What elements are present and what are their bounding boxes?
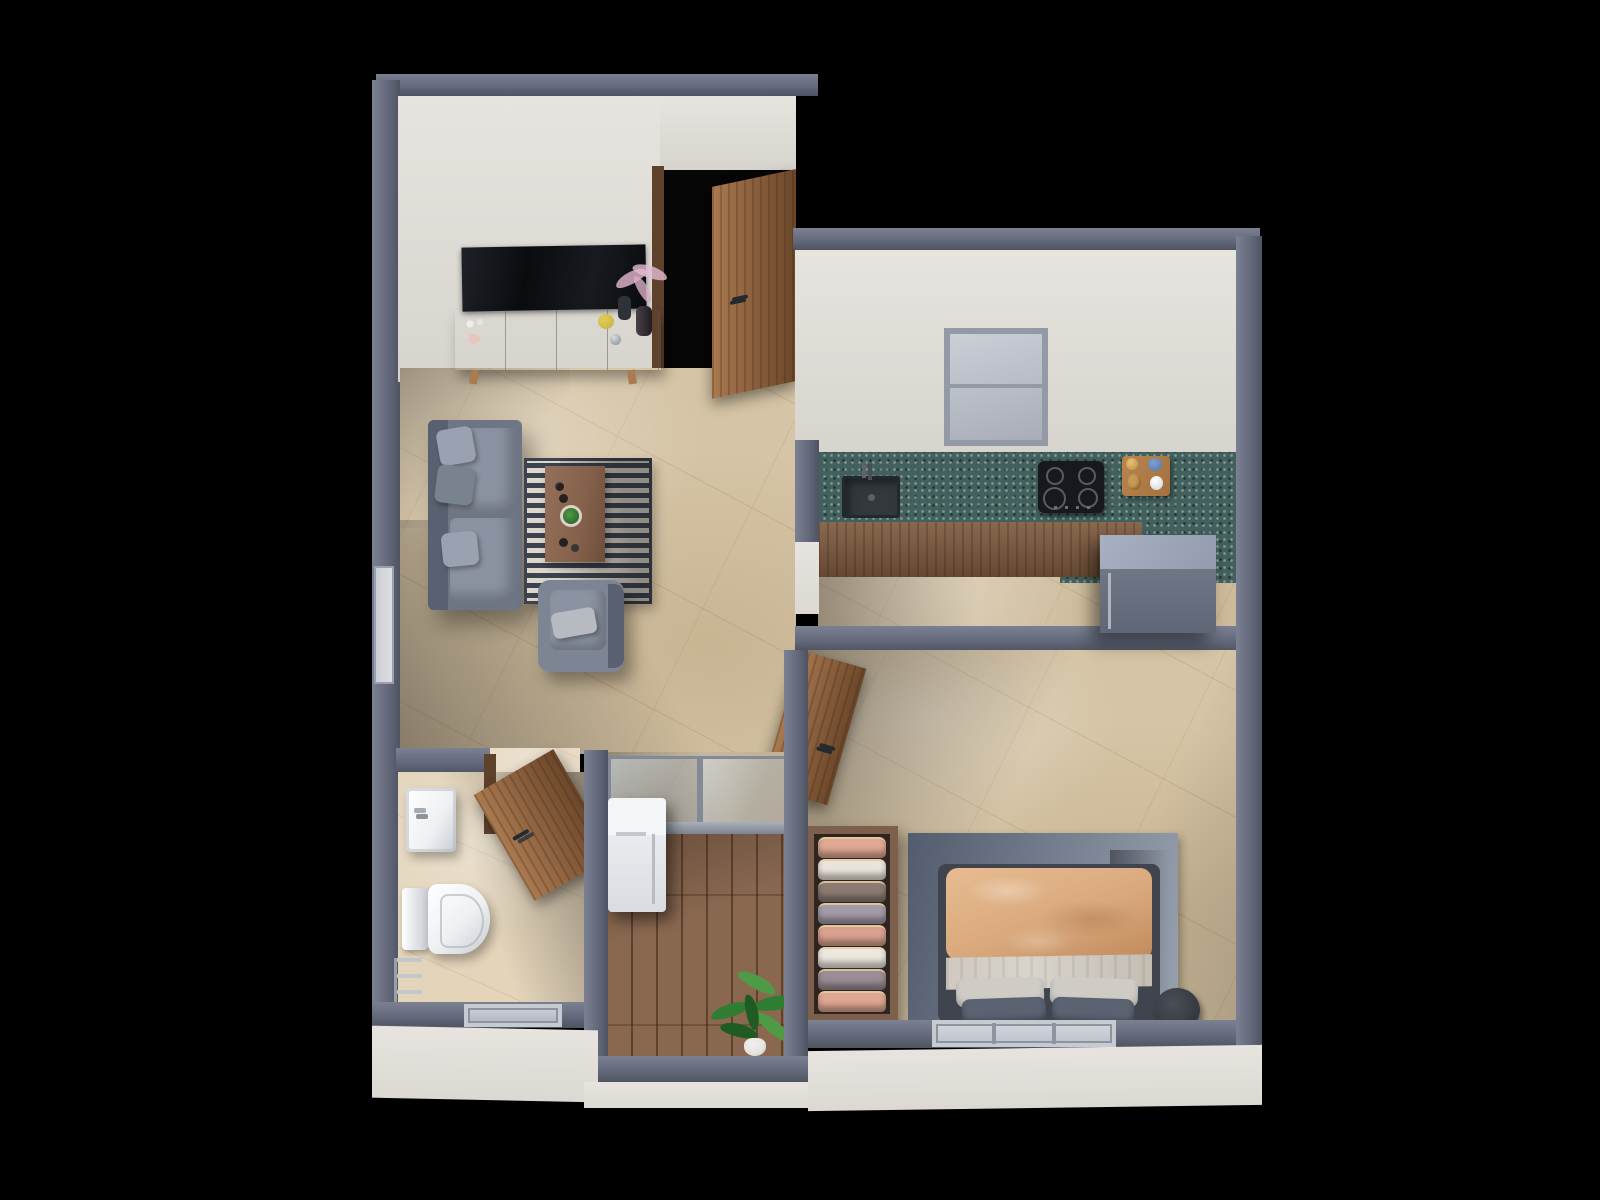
- plant-leaf-2: [735, 967, 778, 998]
- bathroom-window: [464, 1004, 562, 1027]
- sofa: [428, 420, 522, 610]
- bathroom-north-wall-top: [396, 748, 490, 774]
- kitchen-window-bar: [950, 384, 1042, 388]
- bedroom-window-mullion-2: [1052, 1023, 1056, 1044]
- toilet-bowl: [428, 884, 490, 954]
- refrigerator-front: [1100, 569, 1216, 633]
- toilet-tank: [402, 888, 428, 950]
- serving-tray: [1122, 456, 1170, 496]
- console-vase-2: [636, 306, 652, 336]
- sink-drain: [868, 494, 875, 501]
- hanging-garment: [818, 903, 886, 924]
- hanging-garment: [818, 991, 886, 1012]
- living-north-wall-top: [376, 74, 818, 96]
- bathroom-sink: [406, 788, 456, 852]
- bed-duvet: [946, 868, 1152, 960]
- bathroom-faucet: [416, 814, 428, 819]
- armchair: [538, 580, 624, 672]
- wardrobe-clothes: [816, 836, 888, 1012]
- console-vase-1: [618, 296, 631, 320]
- table-cup-2: [559, 494, 568, 503]
- balcony-south-face: [584, 1082, 808, 1108]
- cooktop-knobs: [1054, 506, 1090, 509]
- refrigerator-handle: [1108, 573, 1111, 629]
- kitchen-faucet: [862, 462, 866, 478]
- console-candles: [464, 316, 486, 332]
- plant-pot: [744, 1038, 766, 1056]
- burner-1: [1046, 467, 1064, 485]
- refrigerator-top: [1100, 535, 1216, 569]
- console-metal-ball: [610, 334, 621, 345]
- entrance-door: [712, 169, 796, 399]
- console-pink-ball: [468, 334, 480, 344]
- kitchen-sink: [842, 476, 900, 518]
- balcony-south-wall-top: [584, 1056, 808, 1082]
- refrigerator: [1100, 535, 1216, 633]
- tray-bread: [1128, 474, 1141, 490]
- bedroom-window-mullion-1: [992, 1023, 996, 1044]
- gas-cooktop: [1038, 461, 1104, 513]
- kitchen-north-wall-top: [793, 228, 1260, 250]
- west-wall-top: [372, 80, 400, 1026]
- hanging-garment: [818, 859, 886, 880]
- tray-mug: [1150, 476, 1163, 490]
- console-teapot: [598, 314, 614, 329]
- table-plant: [563, 508, 579, 524]
- living-kitchen-divider-face: [795, 542, 819, 614]
- bedroom-south-face: [808, 1045, 1262, 1111]
- hanging-garment: [818, 947, 886, 968]
- sofa-pillow-3: [440, 530, 479, 568]
- table-cup-4: [571, 544, 579, 552]
- east-wall-top: [1236, 236, 1262, 1048]
- bathroom-door-handle: [512, 829, 530, 841]
- tray-jar: [1126, 458, 1138, 470]
- kitchen-window: [944, 328, 1048, 446]
- hanging-garment: [818, 881, 886, 902]
- open-wardrobe: [806, 826, 898, 1022]
- wall-face-above-entrance: [660, 96, 796, 172]
- table-cup-3: [559, 538, 568, 547]
- washing-machine: [608, 798, 666, 912]
- sofa-pillow-1: [435, 425, 477, 467]
- washer-panel: [616, 832, 646, 836]
- west-wall-window: [374, 566, 394, 684]
- kitchen-base-cabinets: [818, 522, 1142, 577]
- armchair-back: [608, 584, 624, 668]
- hanging-garment: [818, 925, 886, 946]
- washer-door-seam: [652, 834, 655, 904]
- apartment-floor-plan: [0, 0, 1600, 1200]
- bedroom-window: [932, 1020, 1116, 1047]
- balcony-bedroom-wall: [784, 650, 808, 1092]
- hanging-garment: [818, 837, 886, 858]
- entrance-door-handle: [730, 298, 746, 305]
- glass-partition-right: [700, 756, 794, 826]
- toilet-seat-line: [440, 894, 484, 948]
- table-cup-1: [555, 482, 564, 491]
- burner-2: [1078, 467, 1096, 485]
- burner-4: [1078, 488, 1098, 508]
- bedroom-door-handle: [819, 743, 835, 751]
- sofa-pillow-2: [434, 464, 476, 506]
- bathroom-south-face: [372, 1026, 598, 1103]
- tray-bowl-blue: [1148, 458, 1162, 471]
- living-kitchen-divider-wall: [795, 440, 819, 542]
- coffee-table: [545, 466, 605, 562]
- hanging-garment: [818, 969, 886, 990]
